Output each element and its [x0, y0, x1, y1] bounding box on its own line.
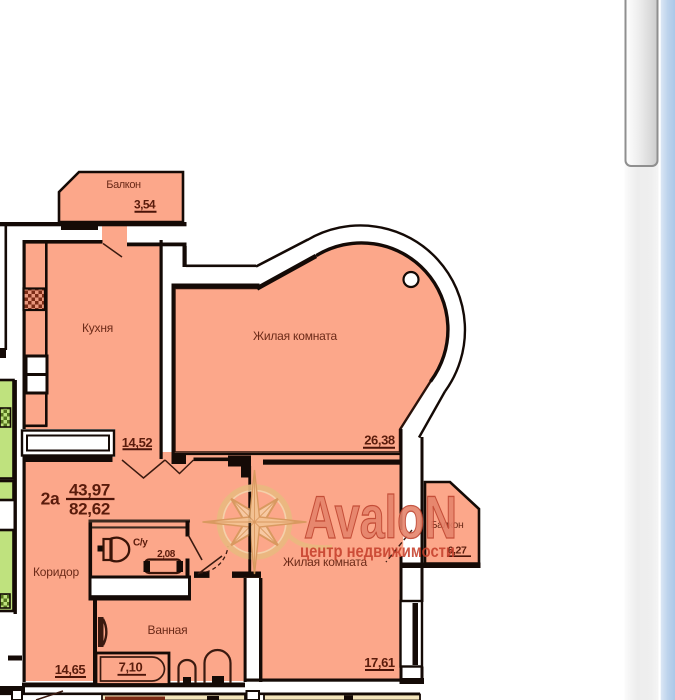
svg-text:14,52: 14,52 — [122, 435, 153, 450]
svg-text:Жилая комната: Жилая комната — [253, 329, 338, 343]
svg-text:7,10: 7,10 — [119, 660, 143, 675]
svg-text:Балкон: Балкон — [106, 179, 141, 191]
svg-text:82,62: 82,62 — [69, 500, 110, 519]
svg-text:Кухня: Кухня — [82, 321, 113, 335]
svg-text:14,65: 14,65 — [55, 662, 86, 677]
svg-text:Ванная: Ванная — [148, 623, 188, 637]
svg-text:С/у: С/у — [133, 538, 148, 549]
svg-text:центр недвижимости: центр недвижимости — [300, 541, 455, 561]
svg-text:2а: 2а — [41, 489, 60, 509]
svg-text:43,97: 43,97 — [69, 481, 110, 500]
svg-text:17,61: 17,61 — [364, 655, 395, 670]
svg-text:Коридор: Коридор — [33, 565, 80, 579]
svg-text:2,08: 2,08 — [157, 549, 176, 560]
svg-text:26,38: 26,38 — [364, 433, 395, 448]
svg-text:3,54: 3,54 — [134, 198, 156, 212]
